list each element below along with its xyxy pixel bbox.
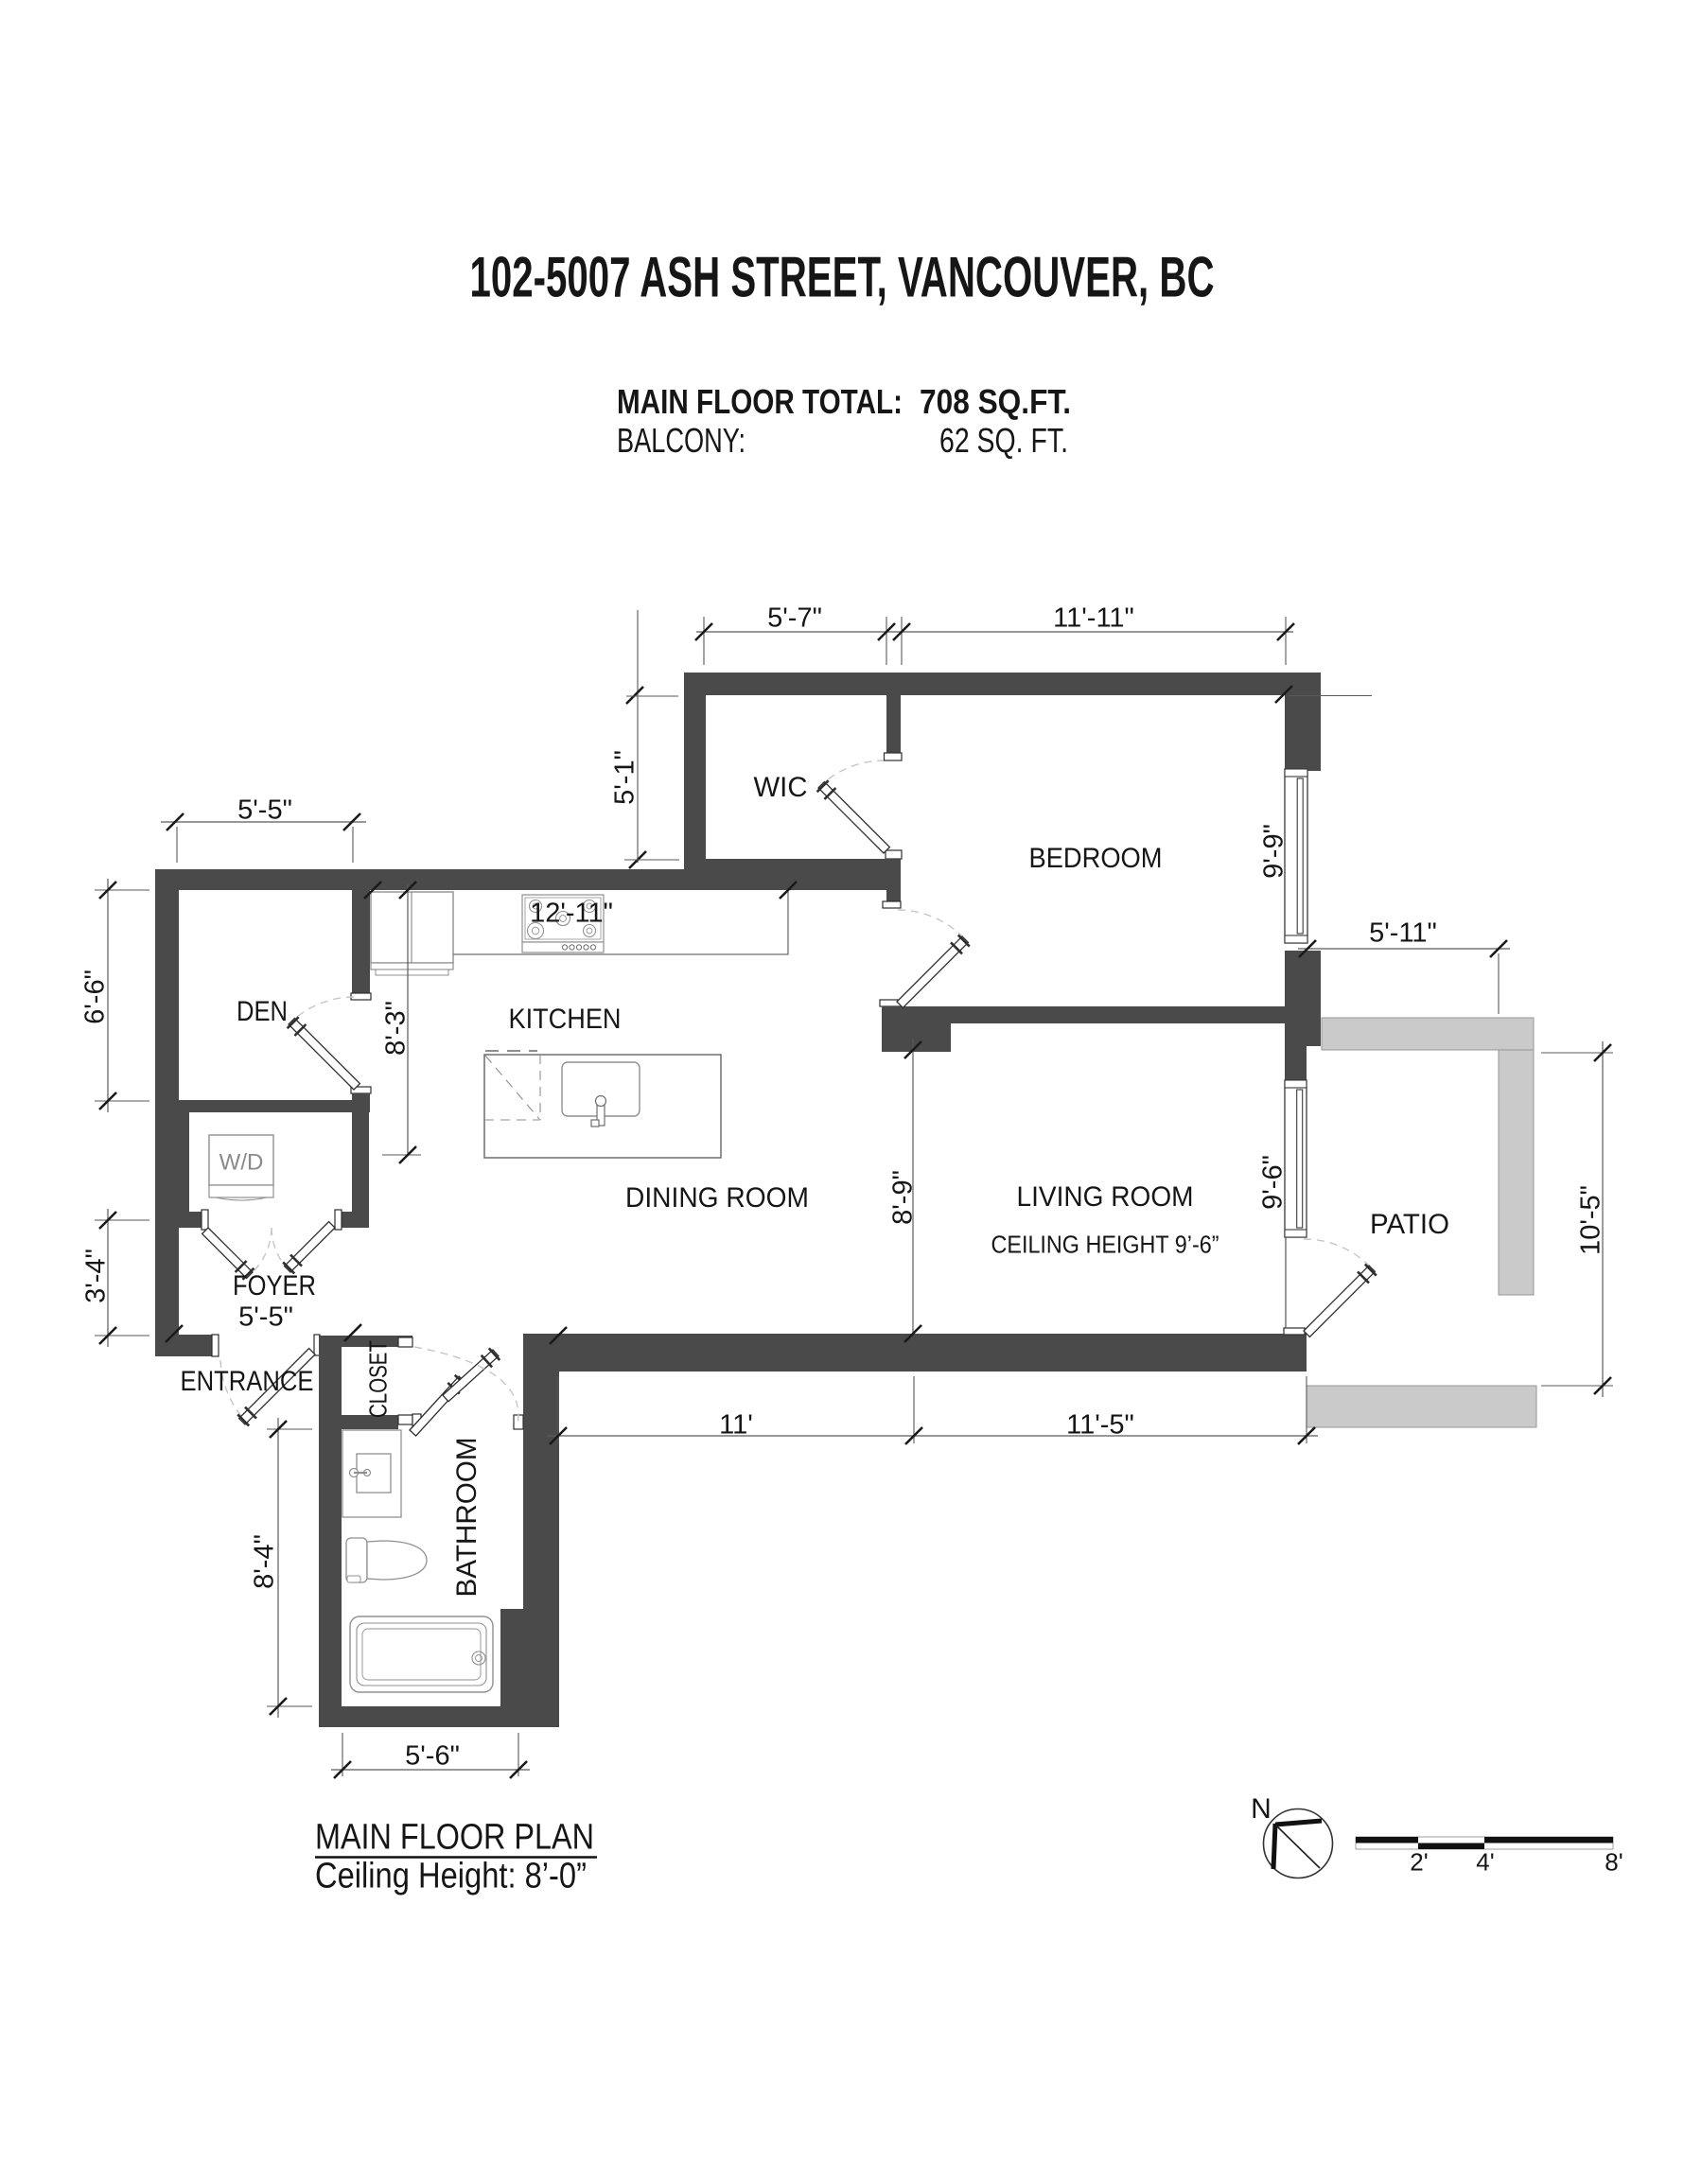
- svg-text:LIVING ROOM: LIVING ROOM: [1017, 1181, 1194, 1213]
- svg-text:8'-4": 8'-4": [249, 1534, 279, 1589]
- svg-text:3'-4": 3'-4": [80, 1249, 111, 1303]
- svg-text:FOYER: FOYER: [233, 1270, 316, 1302]
- svg-text:5'-6": 5'-6": [405, 1740, 460, 1771]
- svg-text:MAIN FLOOR PLAN: MAIN FLOOR PLAN: [315, 1818, 594, 1858]
- svg-text:DINING ROOM: DINING ROOM: [625, 1182, 809, 1214]
- svg-text:ENTRANCE: ENTRANCE: [181, 1366, 314, 1397]
- svg-text:BATHROOM: BATHROOM: [451, 1438, 482, 1598]
- svg-text:2': 2': [1410, 1847, 1428, 1876]
- svg-text:KITCHEN: KITCHEN: [509, 1004, 622, 1035]
- svg-text:4': 4': [1476, 1847, 1494, 1876]
- svg-text:8'-9": 8'-9": [887, 1170, 918, 1225]
- svg-text:12'-11": 12'-11": [530, 898, 613, 928]
- svg-text:6'-6": 6'-6": [79, 970, 110, 1024]
- svg-text:WIC: WIC: [754, 772, 808, 803]
- svg-text:11'-11": 11'-11": [1053, 603, 1134, 633]
- svg-text:9'-9": 9'-9": [1258, 824, 1289, 879]
- svg-text:8'-3": 8'-3": [380, 1001, 411, 1056]
- svg-text:BEDROOM: BEDROOM: [1029, 843, 1163, 874]
- svg-text:CEILING HEIGHT 9’-6”: CEILING HEIGHT 9’-6”: [991, 1230, 1219, 1258]
- svg-text:102-5007 ASH STREET, VANCOUVER: 102-5007 ASH STREET, VANCOUVER, BC: [470, 246, 1215, 309]
- svg-text:Ceiling Height: 8’-0”: Ceiling Height: 8’-0”: [315, 1857, 587, 1896]
- svg-text:8': 8': [1605, 1847, 1623, 1876]
- svg-text:MAIN FLOOR TOTAL:: MAIN FLOOR TOTAL:: [617, 382, 903, 421]
- svg-text:5'-7": 5'-7": [767, 603, 822, 633]
- svg-text:5'-5": 5'-5": [238, 1302, 293, 1332]
- svg-text:11'-5": 11'-5": [1066, 1409, 1134, 1440]
- svg-text:10'-5": 10'-5": [1575, 1185, 1605, 1255]
- svg-text:5'-5": 5'-5": [237, 795, 292, 825]
- svg-text:62 SQ. FT.: 62 SQ. FT.: [939, 421, 1068, 460]
- svg-text:5'-11": 5'-11": [1369, 917, 1437, 948]
- svg-text:PATIO: PATIO: [1370, 1209, 1449, 1240]
- svg-text:11': 11': [719, 1409, 753, 1440]
- svg-text:708 SQ.FT.: 708 SQ.FT.: [920, 382, 1071, 421]
- svg-text:9'-6": 9'-6": [1257, 1155, 1288, 1210]
- svg-text:CLOSET: CLOSET: [363, 1340, 392, 1418]
- svg-text:N: N: [1251, 1793, 1272, 1825]
- svg-text:BALCONY:: BALCONY:: [617, 421, 746, 460]
- svg-text:5'-1": 5'-1": [609, 750, 640, 805]
- svg-text:W/D: W/D: [219, 1150, 264, 1176]
- svg-text:DEN: DEN: [237, 996, 288, 1027]
